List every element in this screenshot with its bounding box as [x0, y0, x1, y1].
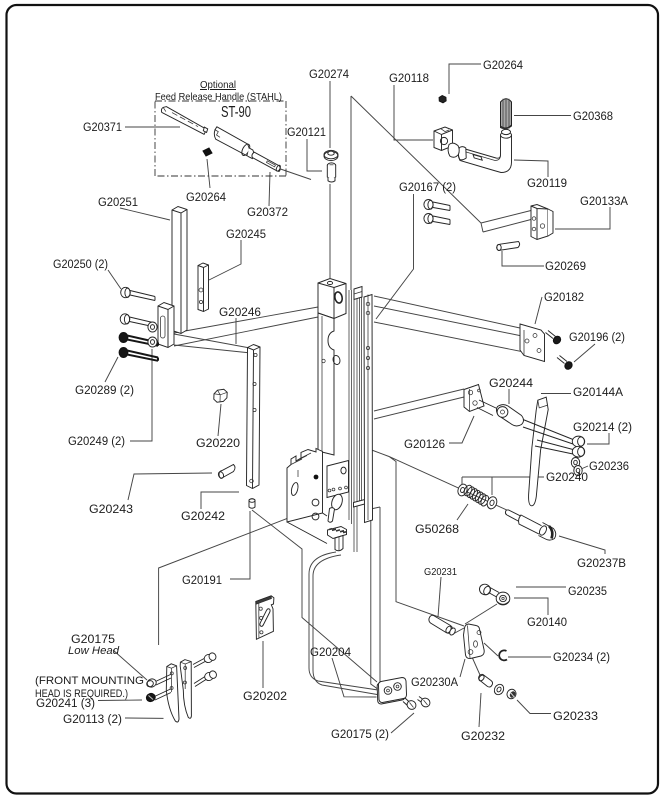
- svg-text:G20231: G20231: [424, 567, 457, 578]
- svg-text:G20250 (2): G20250 (2): [53, 257, 108, 271]
- svg-text:Low Head: Low Head: [68, 645, 120, 657]
- svg-text:G20289 (2): G20289 (2): [75, 383, 134, 397]
- svg-text:G20269: G20269: [545, 259, 586, 273]
- svg-text:G20191: G20191: [182, 573, 222, 587]
- svg-text:ST-90: ST-90: [221, 104, 251, 121]
- svg-text:G20196 (2): G20196 (2): [569, 330, 625, 344]
- svg-text:G20249 (2): G20249 (2): [68, 434, 125, 448]
- svg-text:G20234 (2): G20234 (2): [553, 650, 610, 664]
- svg-text:G20232: G20232: [461, 729, 505, 743]
- svg-text:G20126: G20126: [404, 437, 445, 451]
- svg-text:G20144A: G20144A: [573, 385, 624, 399]
- svg-text:G20240: G20240: [546, 470, 588, 484]
- svg-text:G20264: G20264: [186, 190, 226, 204]
- svg-text:G20202: G20202: [243, 689, 287, 703]
- svg-text:G20182: G20182: [544, 290, 584, 304]
- svg-text:G20133A: G20133A: [580, 194, 629, 208]
- svg-text:G20264: G20264: [483, 58, 523, 72]
- svg-text:G20167 (2): G20167 (2): [399, 180, 456, 194]
- svg-text:Feed Release Handle (STAHL): Feed Release Handle (STAHL): [155, 92, 282, 103]
- svg-text:G20237B: G20237B: [577, 556, 626, 570]
- svg-text:G20371: G20371: [83, 120, 122, 134]
- svg-text:G20245: G20245: [226, 227, 266, 241]
- svg-text:G20244: G20244: [489, 376, 533, 390]
- svg-text:G20241 (3): G20241 (3): [36, 696, 95, 710]
- svg-text:G20242: G20242: [181, 509, 225, 523]
- svg-text:G20118: G20118: [389, 71, 429, 85]
- svg-text:G20175 (2): G20175 (2): [331, 727, 389, 741]
- svg-text:G20372: G20372: [247, 205, 288, 219]
- svg-text:G20246: G20246: [219, 305, 261, 319]
- svg-text:G20233: G20233: [553, 709, 598, 723]
- svg-text:G50268: G50268: [415, 522, 459, 536]
- svg-text:G20220: G20220: [196, 436, 240, 450]
- svg-text:G20251: G20251: [98, 195, 138, 209]
- svg-text:G20230A: G20230A: [411, 675, 459, 689]
- svg-text:G20119: G20119: [527, 176, 567, 190]
- svg-text:G20236: G20236: [589, 459, 629, 473]
- svg-text:G20113 (2): G20113 (2): [63, 712, 122, 726]
- svg-text:G20243: G20243: [89, 502, 133, 516]
- svg-text:G20204: G20204: [310, 645, 351, 659]
- svg-text:G20140: G20140: [527, 615, 567, 629]
- svg-text:G20368: G20368: [573, 109, 613, 123]
- svg-text:G20214 (2): G20214 (2): [573, 420, 632, 434]
- svg-text:G20235: G20235: [568, 584, 607, 598]
- svg-text:G20175: G20175: [71, 632, 115, 646]
- svg-text:G20121: G20121: [287, 125, 326, 139]
- svg-text:(FRONT MOUNTING: (FRONT MOUNTING: [35, 675, 144, 687]
- svg-text:Optional: Optional: [200, 80, 236, 91]
- svg-text:G20274: G20274: [309, 67, 349, 81]
